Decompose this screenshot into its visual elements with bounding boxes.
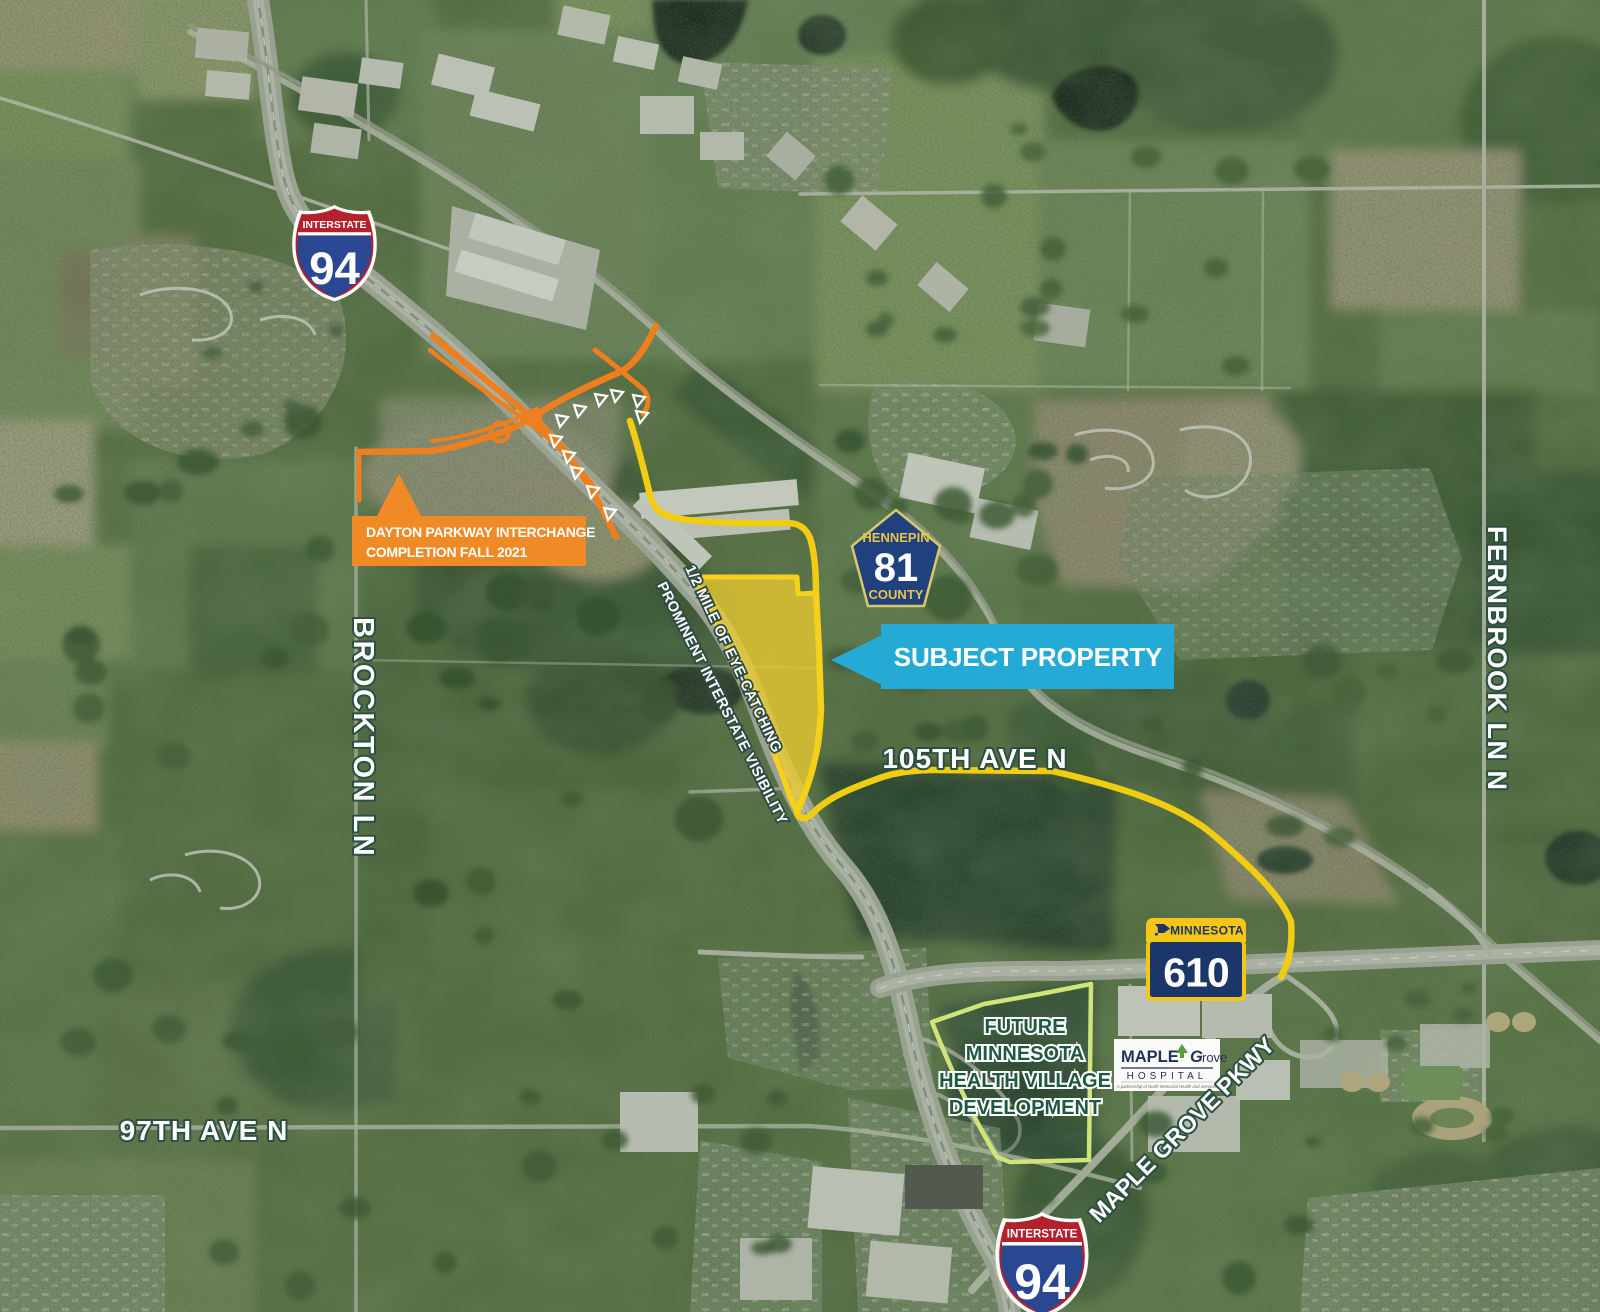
svg-text:FERNBROOK LN N: FERNBROOK LN N (1482, 526, 1512, 792)
svg-text:FUTURE: FUTURE (984, 1016, 1065, 1038)
svg-text:HEALTH VILLAGE: HEALTH VILLAGE (939, 1070, 1111, 1092)
svg-text:rove: rove (1202, 1050, 1227, 1065)
svg-text:610: 610 (1163, 950, 1229, 996)
svg-text:BROCKTON LN: BROCKTON LN (347, 617, 379, 858)
svg-text:97TH AVE N: 97TH AVE N (120, 1115, 289, 1146)
svg-text:SUBJECT PROPERTY: SUBJECT PROPERTY (894, 642, 1162, 672)
svg-text:INTERSTATE: INTERSTATE (302, 220, 366, 231)
svg-text:COMPLETION FALL 2021: COMPLETION FALL 2021 (366, 544, 528, 560)
svg-text:94: 94 (1014, 1254, 1070, 1310)
svg-text:94: 94 (309, 243, 360, 294)
svg-text:MINNESOTA: MINNESOTA (966, 1043, 1085, 1065)
svg-text:81: 81 (874, 546, 919, 590)
svg-text:HENNEPIN: HENNEPIN (862, 530, 929, 545)
svg-text:A partnership of North Memoria: A partnership of North Memorial Health a… (1116, 1084, 1218, 1089)
svg-text:MINNESOTA: MINNESOTA (1170, 924, 1244, 938)
svg-text:MAPLE: MAPLE (1121, 1048, 1179, 1066)
svg-text:DEVELOPMENT: DEVELOPMENT (949, 1097, 1101, 1119)
svg-text:COUNTY: COUNTY (869, 587, 924, 602)
svg-text:INTERSTATE: INTERSTATE (1007, 1229, 1078, 1241)
svg-text:DAYTON PARKWAY INTERCHANGE: DAYTON PARKWAY INTERCHANGE (366, 524, 595, 540)
svg-text:105TH AVE N: 105TH AVE N (882, 743, 1067, 774)
svg-text:HOSPITAL: HOSPITAL (1127, 1071, 1208, 1082)
